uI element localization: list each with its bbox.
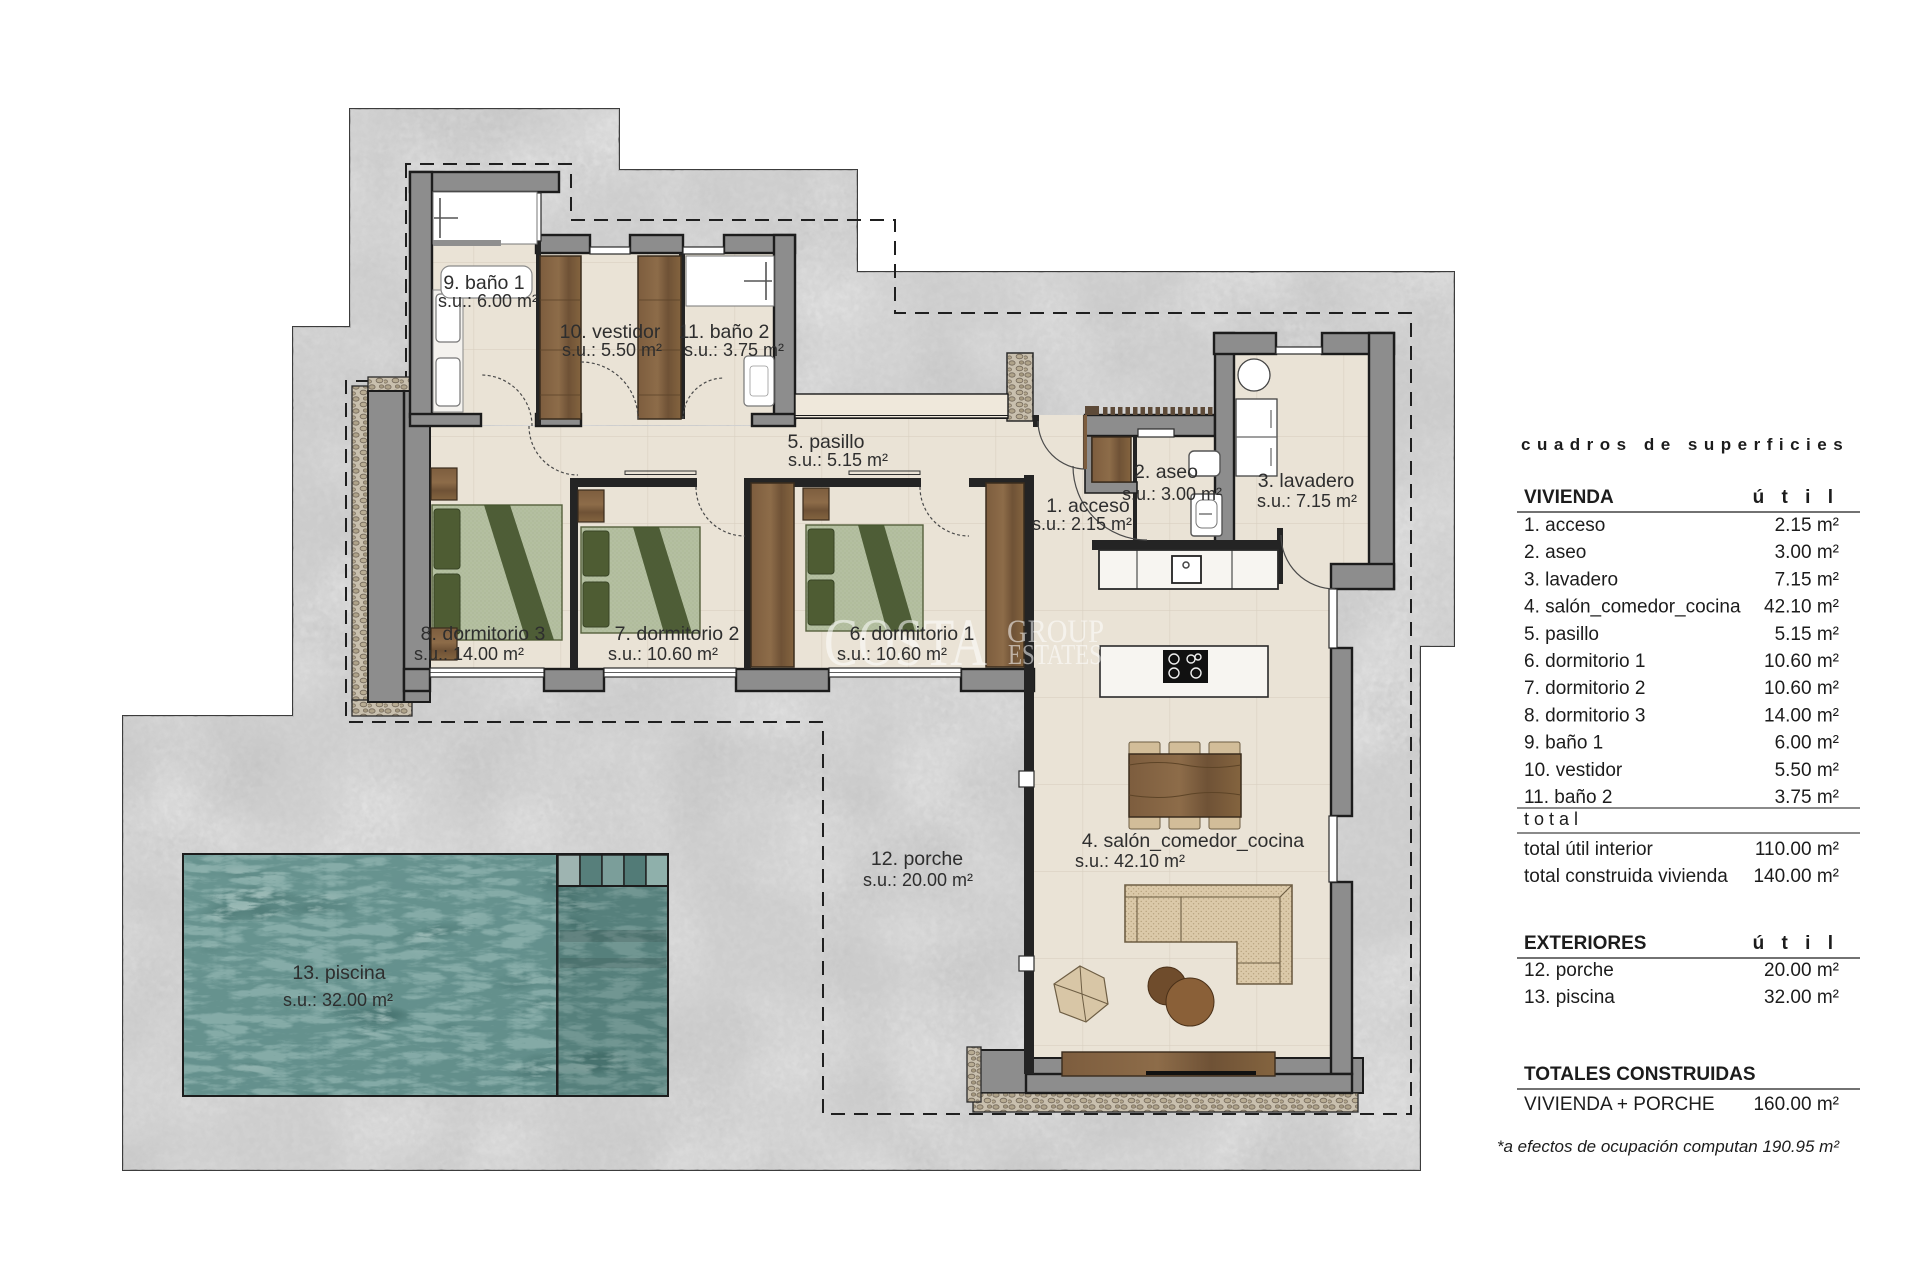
svg-text:s.u.: 32.00 m²: s.u.: 32.00 m² bbox=[283, 990, 393, 1010]
svg-text:VIVIENDA + PORCHE: VIVIENDA + PORCHE bbox=[1524, 1094, 1715, 1115]
svg-text:s.u.: 42.10 m²: s.u.: 42.10 m² bbox=[1075, 851, 1185, 871]
svg-text:160.00 m²: 160.00 m² bbox=[1753, 1094, 1839, 1115]
svg-text:s.u.: 3.00 m²: s.u.: 3.00 m² bbox=[1122, 484, 1222, 504]
svg-text:2. aseo: 2. aseo bbox=[1524, 542, 1586, 563]
svg-text:5. pasillo: 5. pasillo bbox=[1524, 624, 1599, 645]
svg-text:cuadros de superficies: cuadros de superficies bbox=[1521, 435, 1849, 454]
svg-text:9. baño 1: 9. baño 1 bbox=[1524, 733, 1603, 754]
svg-text:s.u.: 14.00 m²: s.u.: 14.00 m² bbox=[414, 644, 524, 664]
svg-text:8. dormitorio 3: 8. dormitorio 3 bbox=[421, 623, 546, 645]
svg-text:6.00 m²: 6.00 m² bbox=[1775, 733, 1839, 754]
svg-text:1. acceso: 1. acceso bbox=[1524, 515, 1605, 536]
svg-text:2. aseo: 2. aseo bbox=[1134, 461, 1198, 483]
svg-text:*a efectos de ocupación comput: *a efectos de ocupación computan 190.95 … bbox=[1497, 1137, 1840, 1156]
svg-text:7. dormitorio 2: 7. dormitorio 2 bbox=[1524, 678, 1645, 699]
svg-text:3.00 m²: 3.00 m² bbox=[1775, 542, 1839, 563]
svg-text:total: total bbox=[1524, 809, 1583, 829]
svg-text:8. dormitorio 3: 8. dormitorio 3 bbox=[1524, 705, 1645, 726]
svg-text:s.u.: 5.15 m²: s.u.: 5.15 m² bbox=[788, 450, 888, 470]
svg-text:s.u.: 7.15 m²: s.u.: 7.15 m² bbox=[1257, 491, 1357, 511]
svg-text:12. porche: 12. porche bbox=[1524, 960, 1614, 981]
svg-text:ú t i l: ú t i l bbox=[1753, 487, 1839, 508]
svg-text:110.00 m²: 110.00 m² bbox=[1755, 839, 1839, 860]
svg-text:s.u.: 20.00 m²: s.u.: 20.00 m² bbox=[863, 870, 973, 890]
svg-text:2.15 m²: 2.15 m² bbox=[1775, 515, 1839, 536]
svg-text:10.60 m²: 10.60 m² bbox=[1764, 678, 1839, 699]
svg-text:10. vestidor: 10. vestidor bbox=[1524, 760, 1623, 781]
svg-text:11. baño 2: 11. baño 2 bbox=[1524, 787, 1612, 808]
svg-text:ESTATES: ESTATES bbox=[1008, 640, 1102, 671]
svg-text:s.u.: 3.75 m²: s.u.: 3.75 m² bbox=[684, 340, 784, 360]
svg-text:s.u.: 6.00 m²: s.u.: 6.00 m² bbox=[438, 291, 538, 311]
svg-text:140.00 m²: 140.00 m² bbox=[1753, 866, 1839, 887]
svg-text:total útil interior: total útil interior bbox=[1524, 839, 1654, 860]
svg-text:EXTERIORES: EXTERIORES bbox=[1524, 933, 1646, 954]
svg-text:4. salón_comedor_cocina: 4. salón_comedor_cocina bbox=[1524, 597, 1741, 618]
svg-text:12. porche: 12. porche bbox=[871, 848, 963, 870]
svg-text:7.15 m²: 7.15 m² bbox=[1775, 569, 1839, 590]
svg-text:s.u.: 5.50 m²: s.u.: 5.50 m² bbox=[562, 340, 662, 360]
svg-text:4. salón_comedor_cocina: 4. salón_comedor_cocina bbox=[1082, 830, 1304, 852]
svg-text:20.00 m²: 20.00 m² bbox=[1764, 960, 1839, 981]
svg-text:s.u.: 2.15 m²: s.u.: 2.15 m² bbox=[1032, 514, 1132, 534]
svg-text:14.00 m²: 14.00 m² bbox=[1764, 705, 1839, 726]
svg-text:total construida vivienda: total construida vivienda bbox=[1524, 866, 1728, 887]
svg-text:3. lavadero: 3. lavadero bbox=[1524, 569, 1618, 590]
svg-text:3.75 m²: 3.75 m² bbox=[1775, 787, 1839, 808]
svg-text:5.15 m²: 5.15 m² bbox=[1775, 624, 1839, 645]
svg-text:VIVIENDA: VIVIENDA bbox=[1524, 487, 1614, 508]
svg-text:6. dormitorio 1: 6. dormitorio 1 bbox=[850, 623, 975, 645]
svg-text:5.50 m²: 5.50 m² bbox=[1775, 760, 1839, 781]
svg-text:s.u.: 10.60 m²: s.u.: 10.60 m² bbox=[837, 644, 947, 664]
svg-text:42.10 m²: 42.10 m² bbox=[1764, 597, 1839, 618]
svg-text:13. piscina: 13. piscina bbox=[1524, 987, 1615, 1008]
svg-text:7. dormitorio 2: 7. dormitorio 2 bbox=[615, 623, 740, 645]
svg-text:13. piscina: 13. piscina bbox=[292, 962, 385, 984]
svg-text:6. dormitorio 1: 6. dormitorio 1 bbox=[1524, 651, 1645, 672]
svg-text:10.60 m²: 10.60 m² bbox=[1764, 651, 1839, 672]
svg-text:TOTALES CONSTRUIDAS: TOTALES CONSTRUIDAS bbox=[1524, 1064, 1756, 1085]
svg-text:s.u.: 10.60 m²: s.u.: 10.60 m² bbox=[608, 644, 718, 664]
svg-text:3. lavadero: 3. lavadero bbox=[1258, 470, 1355, 492]
svg-text:ú t i l: ú t i l bbox=[1753, 933, 1839, 954]
svg-text:32.00 m²: 32.00 m² bbox=[1764, 987, 1839, 1008]
